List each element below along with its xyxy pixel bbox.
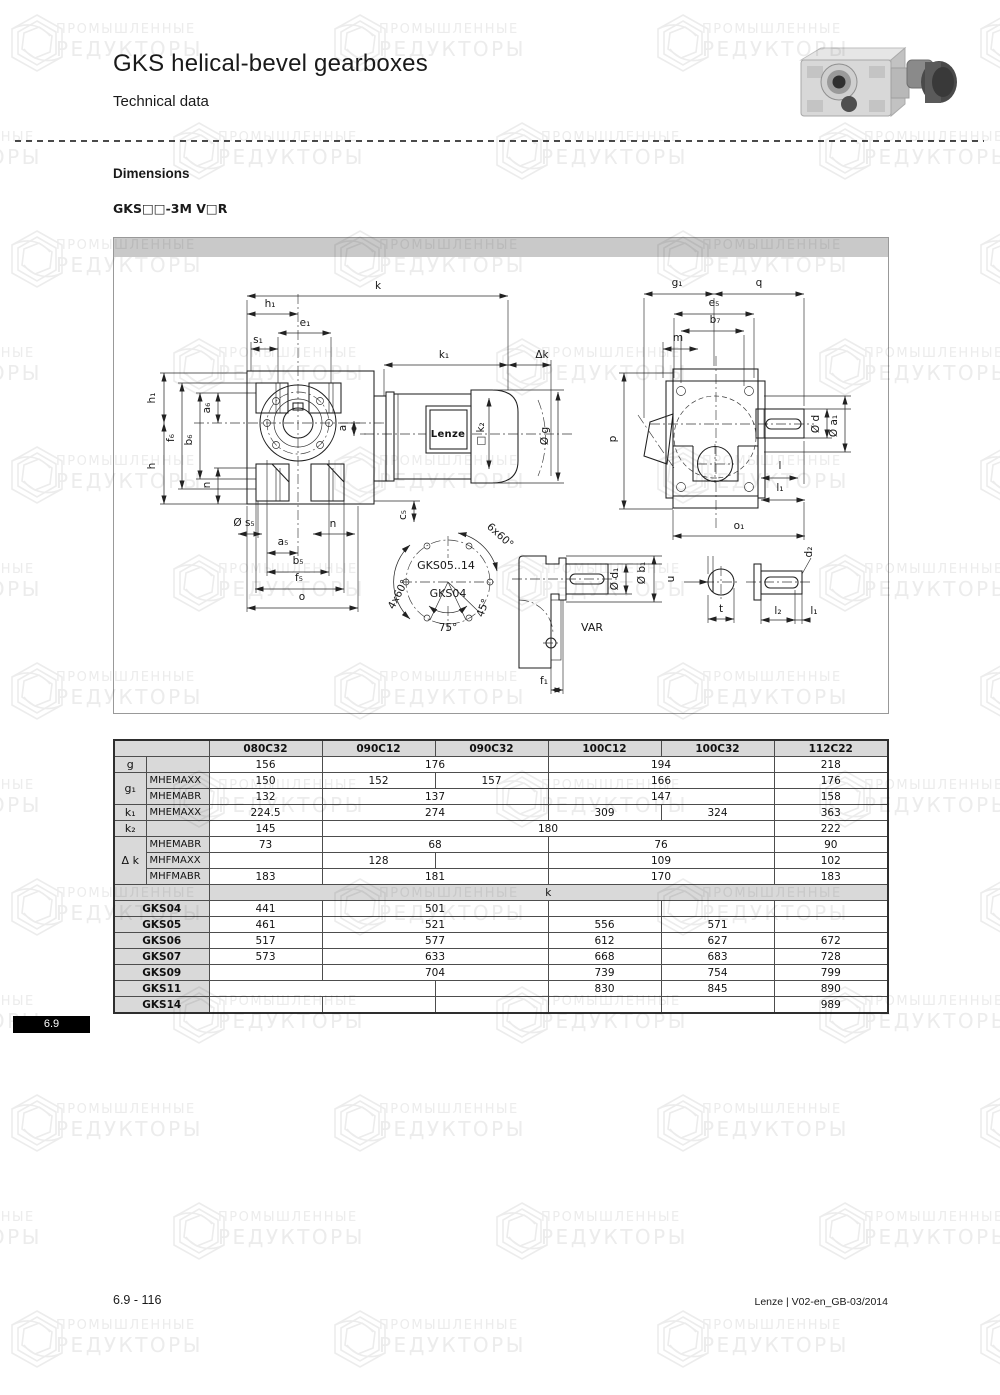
watermark-line1: ПРОМЫШЛЕННЫЕ	[0, 1211, 42, 1226]
watermark-line1: ПРОМЫШЛЕННЫЕ	[0, 131, 42, 146]
table-cell	[774, 917, 888, 933]
table-cell: 577	[322, 933, 548, 949]
dim-label: l₁	[776, 482, 783, 494]
table-cell: 109	[548, 853, 774, 869]
watermark-logo-icon	[6, 660, 68, 720]
watermark-line1: ПРОМЫШЛЕННЫЕ	[702, 1103, 849, 1118]
watermark-line2: РЕДУКТОРЫ	[218, 1226, 365, 1249]
watermark-line2: РЕДУКТОРЫ	[56, 1118, 203, 1141]
dim-label: c₅	[397, 510, 409, 520]
table-row: GKS11830845890	[114, 981, 888, 997]
watermark-logo-icon	[6, 1308, 68, 1368]
watermark: ПРОМЫШЛЕННЫЕ РЕДУКТОРЫ	[814, 120, 1000, 180]
dim-label: GKS04	[430, 587, 467, 600]
watermark-line1: ПРОМЫШЛЕННЫЕ	[864, 1211, 1000, 1226]
watermark-line1: ПРОМЫШЛЕННЫЕ	[0, 779, 42, 794]
dim-label: n	[330, 518, 337, 530]
watermark-line1: ПРОМЫШЛЕННЫЕ	[56, 1103, 203, 1118]
table-cell: 132	[209, 789, 322, 805]
column-header: 090C12	[322, 740, 435, 757]
watermark-line1: ПРОМЫШЛЕННЫЕ	[56, 1319, 203, 1334]
dimensions-table: 080C32090C12090C32100C12100C32112C22g156…	[113, 739, 889, 1014]
table-cell: 556	[548, 917, 661, 933]
column-header: 100C32	[661, 740, 774, 757]
table-cell: 180	[322, 821, 774, 837]
watermark-logo-icon	[975, 876, 1000, 936]
dim-label: k	[375, 280, 382, 292]
footer-document-id: Lenze | V02-en_GB-03/2014	[755, 1296, 889, 1308]
table-cell: 668	[548, 949, 661, 965]
watermark: ПРОМЫШЛЕННЫЕ РЕДУКТОРЫ	[975, 1092, 1000, 1152]
dim-label: GKS05..14	[417, 559, 475, 572]
technical-drawing: kh₁e₁s₁k₁Δkh₁f₆b₆a₆hna□ k₂Ø gc₅Ø s₅na₅b₅…	[114, 238, 888, 713]
watermark: ПРОМЫШЛЕННЫЕ РЕДУКТОРЫ	[975, 876, 1000, 936]
dim-label: l₁	[810, 605, 817, 617]
dim-label: a₅	[278, 536, 289, 548]
dim-label: Ø g	[539, 427, 551, 445]
dim-label: □ k₂	[475, 422, 487, 446]
watermark-logo-icon	[975, 660, 1000, 720]
watermark: ПРОМЫШЛЕННЫЕ РЕДУКТОРЫ	[975, 228, 1000, 288]
row-sublabel: MHFMABR	[146, 869, 209, 885]
watermark: ПРОМЫШЛЕННЫЕ РЕДУКТОРЫ	[0, 336, 42, 396]
table-cell: 102	[774, 853, 888, 869]
dim-label: d₂	[803, 547, 815, 558]
page-subtitle: Technical data	[113, 93, 209, 110]
technical-drawing-box: kh₁e₁s₁k₁Δkh₁f₆b₆a₆hna□ k₂Ø gc₅Ø s₅na₅b₅…	[113, 237, 889, 714]
dim-label: g₁	[672, 277, 683, 289]
table-row: GKS05461521556571	[114, 917, 888, 933]
watermark-line2: РЕДУКТОРЫ	[0, 794, 42, 817]
watermark-logo-icon	[652, 12, 714, 72]
watermark-line2: РЕДУКТОРЫ	[541, 1226, 688, 1249]
dim-label: 4x60°	[386, 578, 411, 611]
dim-label: 75°	[439, 622, 458, 634]
dim-label: Δk	[535, 349, 549, 361]
dim-label: a	[337, 425, 349, 431]
watermark-logo-icon	[329, 1308, 391, 1368]
table-row: MHEMABR132137147158	[114, 789, 888, 805]
row-label: k₁	[114, 805, 146, 821]
watermark-logo-icon	[6, 12, 68, 72]
table-cell: 137	[322, 789, 548, 805]
dim-label: Ø b₁	[636, 562, 648, 584]
dimension-labels: kh₁e₁s₁k₁Δkh₁f₆b₆a₆hna□ k₂Ø gc₅Ø s₅na₅b₅…	[146, 277, 840, 687]
row-sublabel: MHEMABR	[146, 837, 209, 853]
table-cell: 90	[774, 837, 888, 853]
table-cell	[774, 901, 888, 917]
table-cell: 501	[322, 901, 548, 917]
watermark-line1: ПРОМЫШЛЕННЫЕ	[541, 1211, 688, 1226]
watermark-logo-icon	[975, 1308, 1000, 1368]
table-row: GKS04441501	[114, 901, 888, 917]
dim-label: a₆	[201, 403, 213, 414]
watermark-logo-icon	[814, 1200, 876, 1260]
table-cell	[661, 997, 774, 1014]
watermark-line1: ПРОМЫШЛЕННЫЕ	[0, 563, 42, 578]
table-cell: 571	[661, 917, 774, 933]
table-row: GKS09704739754799	[114, 965, 888, 981]
table-cell: 176	[774, 773, 888, 789]
dim-label: q	[756, 277, 763, 289]
row-label: g	[114, 757, 146, 773]
watermark-logo-icon	[6, 1092, 68, 1152]
watermark-line2: РЕДУКТОРЫ	[0, 578, 42, 601]
table-cell: 68	[322, 837, 548, 853]
shaft-details	[684, 556, 811, 624]
watermark: ПРОМЫШЛЕННЫЕ РЕДУКТОРЫ	[6, 1308, 203, 1368]
dim-label: n	[201, 482, 213, 489]
table-cell: 147	[548, 789, 774, 805]
table-cell: 194	[548, 757, 774, 773]
watermark: ПРОМЫШЛЕННЫЕ РЕДУКТОРЫ	[975, 444, 1000, 504]
dim-label: f₆	[165, 434, 177, 442]
table-row: k₁MHEMAXX224.5274309324363	[114, 805, 888, 821]
row-sublabel: MHEMABR	[146, 789, 209, 805]
table-cell	[435, 997, 548, 1014]
table-cell: 76	[548, 837, 774, 853]
table-cell: 672	[774, 933, 888, 949]
watermark-line1: ПРОМЫШЛЕННЫЕ	[379, 1319, 526, 1334]
watermark: ПРОМЫШЛЕННЫЕ РЕДУКТОРЫ	[0, 984, 42, 1044]
table-row: k	[114, 885, 888, 901]
watermark-line1: ПРОМЫШЛЕННЫЕ	[541, 131, 688, 146]
table-cell: 521	[322, 917, 548, 933]
watermark-logo-icon	[491, 120, 553, 180]
table-cell: 612	[548, 933, 661, 949]
table-cell: 517	[209, 933, 322, 949]
table-cell: 150	[209, 773, 322, 789]
row-label: GKS05	[114, 917, 209, 933]
watermark-line2: РЕДУКТОРЫ	[864, 1226, 1000, 1249]
table-row: GKS14989	[114, 997, 888, 1014]
dim-label: k₁	[439, 349, 449, 361]
dim-label: e₁	[300, 317, 311, 329]
table-cell: 739	[548, 965, 661, 981]
row-label: GKS07	[114, 949, 209, 965]
dim-label: f₅	[295, 572, 303, 584]
dim-label: b₅	[293, 555, 304, 567]
row-sublabel: MHEMAXX	[146, 805, 209, 821]
watermark-logo-icon	[6, 444, 68, 504]
dim-label: f₁	[540, 675, 548, 687]
watermark-line1: ПРОМЫШЛЕННЫЕ	[0, 347, 42, 362]
row-label: GKS14	[114, 997, 209, 1014]
table-row: MHFMABR183181170183	[114, 869, 888, 885]
dim-label: s₁	[253, 334, 263, 346]
watermark-logo-icon	[652, 1092, 714, 1152]
watermark-logo-icon	[652, 1308, 714, 1368]
dim-label: b₆	[183, 435, 195, 446]
table-cell	[114, 885, 209, 901]
page-title: GKS helical-bevel gearboxes	[113, 50, 428, 78]
table-cell: 627	[661, 933, 774, 949]
watermark-line1: ПРОМЫШЛЕННЫЕ	[864, 131, 1000, 146]
table-cell: 181	[322, 869, 548, 885]
dimensions-table-wrap: 080C32090C12090C32100C12100C32112C22g156…	[113, 739, 889, 1014]
watermark: ПРОМЫШЛЕННЫЕ РЕДУКТОРЫ	[0, 120, 42, 180]
table-row: MHFMAXX128109102	[114, 853, 888, 869]
gearbox-product-image	[787, 42, 960, 124]
table-cell: 845	[661, 981, 774, 997]
watermark-line1: ПРОМЫШЛЕННЫЕ	[218, 1211, 365, 1226]
watermark-line2: РЕДУКТОРЫ	[379, 1334, 526, 1357]
row-sublabel	[146, 821, 209, 837]
dim-label: Ø a₁	[828, 415, 840, 437]
watermark-line2: РЕДУКТОРЫ	[0, 1226, 42, 1249]
watermark-line1: ПРОМЫШЛЕННЫЕ	[702, 1319, 849, 1334]
dim-label: t	[719, 603, 723, 615]
table-cell	[322, 997, 435, 1014]
table-row: g₁MHEMAXX150152157166176	[114, 773, 888, 789]
watermark: ПРОМЫШЛЕННЫЕ РЕДУКТОРЫ	[975, 12, 1000, 72]
table-cell	[661, 901, 774, 917]
table-cell	[209, 981, 435, 997]
table-cell: 176	[322, 757, 548, 773]
watermark: ПРОМЫШЛЕННЫЕ РЕДУКТОРЫ	[0, 552, 42, 612]
watermark: ПРОМЫШЛЕННЫЕ РЕДУКТОРЫ	[168, 120, 365, 180]
row-label: GKS04	[114, 901, 209, 917]
drawing-header-band	[114, 238, 888, 257]
dim-label: o	[299, 591, 305, 603]
table-cell: 222	[774, 821, 888, 837]
dim-label: u	[665, 576, 677, 583]
watermark-line1: ПРОМЫШЛЕННЫЕ	[218, 131, 365, 146]
dim-label: p	[607, 435, 619, 442]
watermark-line2: РЕДУКТОРЫ	[0, 362, 42, 385]
watermark-logo-icon	[975, 12, 1000, 72]
dim-label: h₁	[146, 393, 158, 404]
row-sublabel	[146, 757, 209, 773]
table-cell: 461	[209, 917, 322, 933]
watermark-logo-icon	[975, 228, 1000, 288]
row-label: g₁	[114, 773, 146, 805]
dim-label: Ø d₁	[609, 568, 621, 590]
watermark-logo-icon	[814, 120, 876, 180]
dim-label: o₁	[734, 520, 745, 532]
dim-label: h	[146, 463, 158, 470]
table-cell	[114, 740, 209, 757]
watermark-line2: РЕДУКТОРЫ	[541, 146, 688, 169]
table-cell: 224.5	[209, 805, 322, 821]
table-cell: 157	[435, 773, 548, 789]
watermark-line2: РЕДУКТОРЫ	[379, 1118, 526, 1141]
table-row: Δ kMHEMABR73687690	[114, 837, 888, 853]
table-cell: 218	[774, 757, 888, 773]
dashed-divider	[15, 140, 984, 142]
centerlines	[194, 294, 814, 651]
table-cell: 704	[322, 965, 548, 981]
table-cell: 754	[661, 965, 774, 981]
table-cell: 683	[661, 949, 774, 965]
watermark: ПРОМЫШЛЕННЫЕ РЕДУКТОРЫ	[491, 120, 688, 180]
watermark: ПРОМЫШЛЕННЫЕ РЕДУКТОРЫ	[491, 1200, 688, 1260]
watermark: ПРОМЫШЛЕННЫЕ РЕДУКТОРЫ	[329, 1092, 526, 1152]
watermark: ПРОМЫШЛЕННЫЕ РЕДУКТОРЫ	[329, 1308, 526, 1368]
watermark: ПРОМЫШЛЕННЫЕ РЕДУКТОРЫ	[0, 1200, 42, 1260]
watermark-line2: РЕДУКТОРЫ	[218, 146, 365, 169]
table-cell: 728	[774, 949, 888, 965]
table-cell: 145	[209, 821, 322, 837]
chapter-tab-badge: 6.9	[13, 1016, 90, 1033]
watermark-logo-icon	[6, 228, 68, 288]
table-cell: 73	[209, 837, 322, 853]
table-cell: 363	[774, 805, 888, 821]
watermark-line2: РЕДУКТОРЫ	[702, 1118, 849, 1141]
table-cell: 441	[209, 901, 322, 917]
row-label: Δ k	[114, 837, 146, 885]
watermark: ПРОМЫШЛЕННЫЕ РЕДУКТОРЫ	[168, 1200, 365, 1260]
table-cell: 166	[548, 773, 774, 789]
column-header: 100C12	[548, 740, 661, 757]
dim-label: VAR	[581, 621, 603, 634]
watermark-line2: РЕДУКТОРЫ	[56, 1334, 203, 1357]
column-header: 080C32	[209, 740, 322, 757]
dim-label: m	[673, 332, 683, 344]
watermark-line2: РЕДУКТОРЫ	[0, 146, 42, 169]
column-header: 090C32	[435, 740, 548, 757]
table-cell	[209, 997, 322, 1014]
model-variant-label: GKS□□-3M V□R	[113, 201, 227, 216]
table-cell: 799	[774, 965, 888, 981]
table-row: GKS07573633668683728	[114, 949, 888, 965]
table-row: g156176194218	[114, 757, 888, 773]
watermark: ПРОМЫШЛЕННЫЕ РЕДУКТОРЫ	[652, 1092, 849, 1152]
table-cell	[435, 981, 548, 997]
table-row: k₂145180222	[114, 821, 888, 837]
column-header: 112C22	[774, 740, 888, 757]
dim-label: Ø d	[810, 415, 822, 433]
row-label: GKS09	[114, 965, 209, 981]
table-cell	[209, 965, 322, 981]
table-cell: 183	[209, 869, 322, 885]
watermark: ПРОМЫШЛЕННЫЕ РЕДУКТОРЫ	[975, 1308, 1000, 1368]
table-cell	[209, 853, 322, 869]
footer-page-number: 6.9 - 116	[113, 1293, 161, 1307]
table-cell: 633	[322, 949, 548, 965]
dim-label: l	[779, 460, 782, 472]
row-label: GKS11	[114, 981, 209, 997]
watermark: ПРОМЫШЛЕННЫЕ РЕДУКТОРЫ	[652, 1308, 849, 1368]
watermark: ПРОМЫШЛЕННЫЕ РЕДУКТОРЫ	[6, 1092, 203, 1152]
table-cell: 989	[774, 997, 888, 1014]
watermark-logo-icon	[491, 1200, 553, 1260]
table-cell: 573	[209, 949, 322, 965]
watermark: ПРОМЫШЛЕННЫЕ РЕДУКТОРЫ	[814, 1200, 1000, 1260]
dim-label: Lenze	[431, 429, 465, 440]
row-label: k₂	[114, 821, 146, 837]
table-cell: 152	[322, 773, 435, 789]
table-cell: 128	[322, 853, 435, 869]
table-cell: 309	[548, 805, 661, 821]
watermark-line2: РЕДУКТОРЫ	[864, 146, 1000, 169]
section-row-label: k	[209, 885, 888, 901]
table-cell: 274	[322, 805, 548, 821]
dim-label: Ø s₅	[233, 517, 254, 529]
watermark-logo-icon	[975, 1092, 1000, 1152]
dim-label: h₁	[265, 298, 276, 310]
front-view	[160, 296, 564, 612]
watermark-logo-icon	[168, 1200, 230, 1260]
table-cell	[435, 853, 548, 869]
table-header-row: 080C32090C12090C32100C12100C32112C22	[114, 740, 888, 757]
watermark: ПРОМЫШЛЕННЫЕ РЕДУКТОРЫ	[0, 768, 42, 828]
dim-label: b₇	[710, 314, 721, 326]
table-cell	[548, 901, 661, 917]
table-cell	[548, 997, 661, 1014]
row-sublabel: MHFMAXX	[146, 853, 209, 869]
watermark-logo-icon	[329, 1092, 391, 1152]
table-cell: 156	[209, 757, 322, 773]
watermark-line1: ПРОМЫШЛЕННЫЕ	[702, 23, 849, 38]
watermark: ПРОМЫШЛЕННЫЕ РЕДУКТОРЫ	[975, 660, 1000, 720]
table-cell: 183	[774, 869, 888, 885]
row-label: GKS06	[114, 933, 209, 949]
table-row: GKS06517577612627672	[114, 933, 888, 949]
dim-label: 45°	[474, 597, 492, 619]
row-sublabel: MHEMAXX	[146, 773, 209, 789]
watermark-line2: РЕДУКТОРЫ	[702, 1334, 849, 1357]
dim-label: 6x60°	[484, 521, 515, 551]
dim-label: l₂	[774, 605, 781, 617]
table-cell: 158	[774, 789, 888, 805]
dim-label: e₅	[709, 297, 720, 309]
section-heading: Dimensions	[113, 166, 190, 181]
watermark-logo-icon	[6, 876, 68, 936]
watermark-line1: ПРОМЫШЛЕННЫЕ	[0, 995, 42, 1010]
table-cell: 170	[548, 869, 774, 885]
table-cell: 830	[548, 981, 661, 997]
watermark-line1: ПРОМЫШЛЕННЫЕ	[379, 23, 526, 38]
watermark-line1: ПРОМЫШЛЕННЫЕ	[379, 1103, 526, 1118]
datasheet-page: GKS helical-bevel gearboxes Technical da…	[0, 0, 1000, 1395]
watermark-logo-icon	[975, 444, 1000, 504]
watermark-line1: ПРОМЫШЛЕННЫЕ	[56, 23, 203, 38]
table-cell: 324	[661, 805, 774, 821]
table-cell: 890	[774, 981, 888, 997]
